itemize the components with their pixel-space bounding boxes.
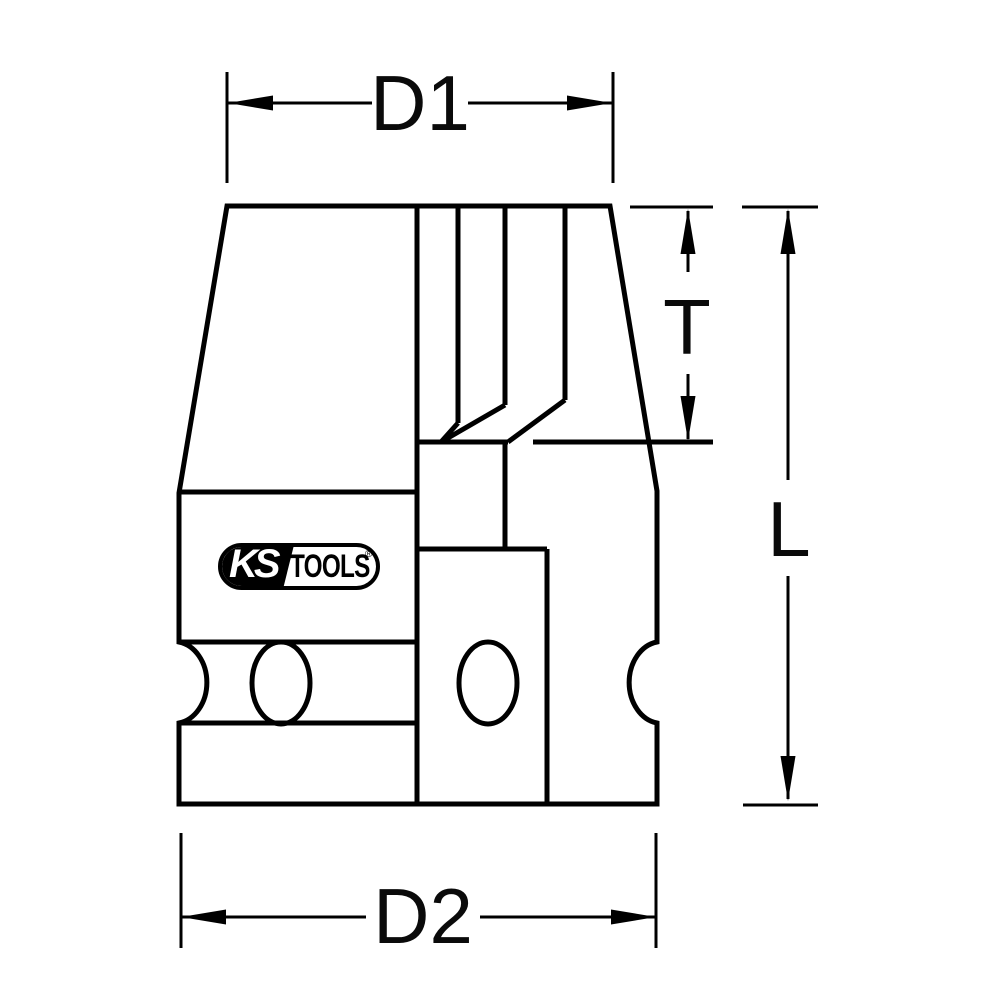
- pin-hole-left: [252, 642, 310, 724]
- d2-label: D2: [373, 872, 473, 960]
- l-label: L: [767, 485, 810, 573]
- l-arrow-up-icon: [781, 209, 796, 254]
- drawing-svg: D1 D2 T: [0, 0, 1000, 1000]
- socket-technical-drawing: D1 D2 T: [0, 0, 1000, 1000]
- dimension-l: L: [742, 207, 818, 805]
- t-label: T: [663, 283, 711, 371]
- hex-bore-chamfer-2: [441, 405, 505, 442]
- t-arrow-up-icon: [681, 209, 696, 254]
- d2-arrow-left-icon: [181, 910, 226, 925]
- dimension-d2: D2: [181, 833, 656, 960]
- socket-body: [179, 206, 713, 804]
- d2-arrow-right-icon: [611, 910, 656, 925]
- pin-hole-center: [459, 642, 517, 724]
- t-arrow-down-icon: [681, 396, 696, 441]
- d1-label: D1: [370, 59, 470, 147]
- d1-arrow-left-icon: [228, 96, 273, 111]
- ks-tools-logo-suffix: TOOLS: [290, 550, 370, 582]
- ks-tools-logo-brand: KS: [229, 543, 277, 586]
- dimension-d1: D1: [227, 59, 613, 183]
- hex-bore-chamfer-3: [508, 400, 565, 442]
- l-arrow-down-icon: [781, 756, 796, 801]
- d1-arrow-right-icon: [567, 96, 612, 111]
- ks-tools-logo: KS TOOLS ®: [218, 543, 380, 590]
- registered-trademark-icon: ®: [365, 550, 372, 560]
